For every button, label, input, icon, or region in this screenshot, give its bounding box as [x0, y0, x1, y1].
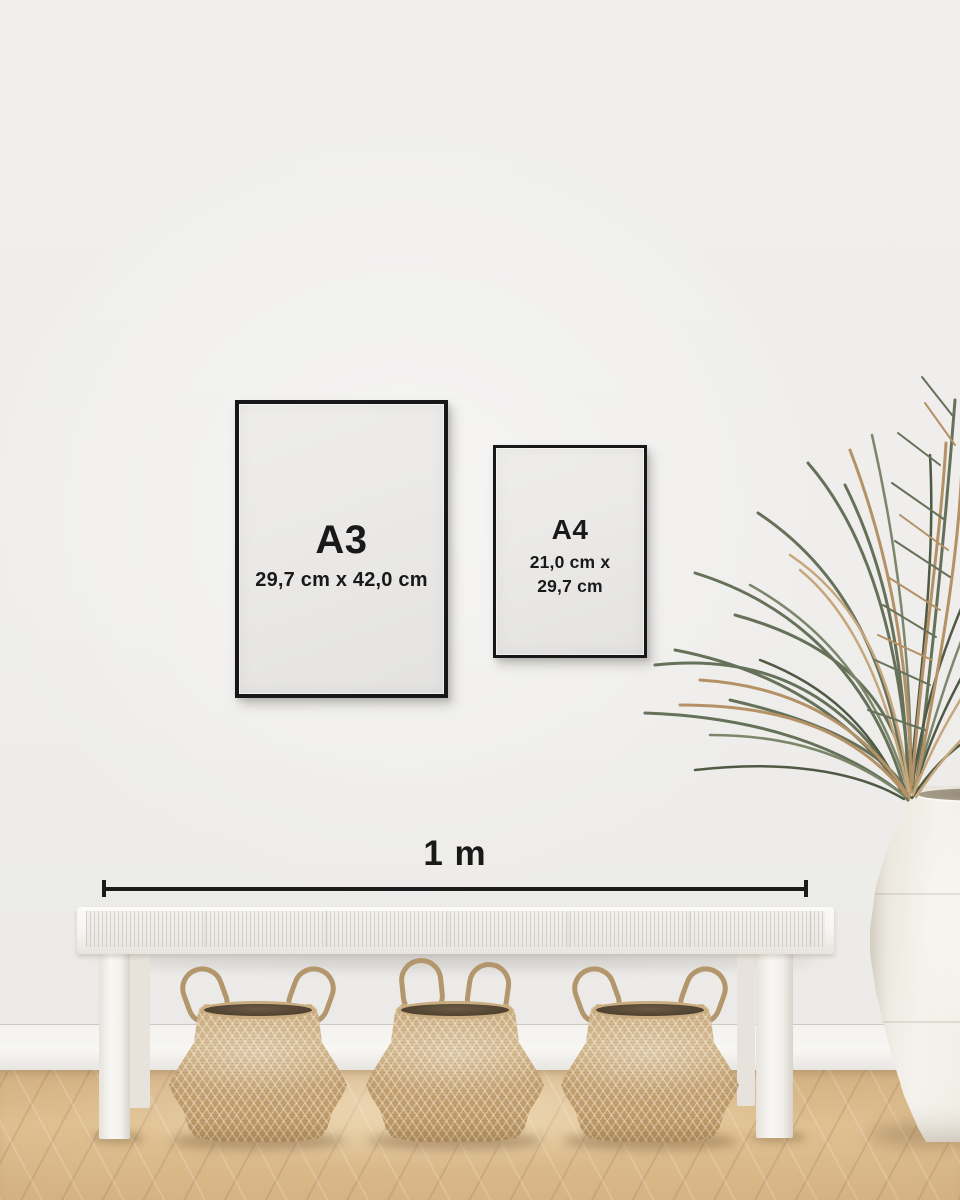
size-guide-mockup: A3 29,7 cm x 42,0 cm A4 21,0 cm x 29,7 c… — [0, 0, 960, 1200]
vignette — [0, 0, 960, 1200]
